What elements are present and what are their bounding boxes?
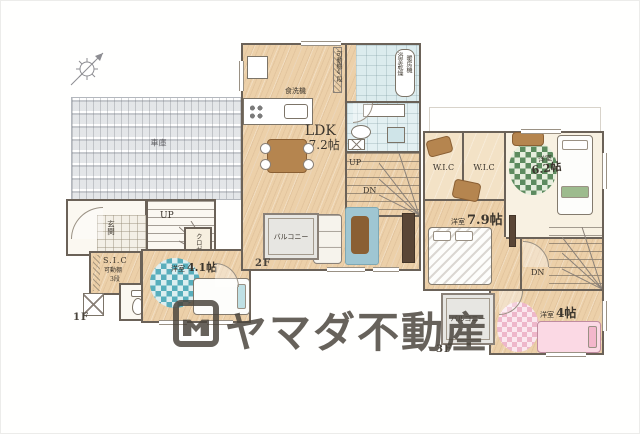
window-2f-d [239, 61, 244, 91]
bedroom-4-1-type: 洋室 [171, 265, 185, 273]
bath-dryer-label-1: 浴室乾燥 [396, 52, 402, 76]
watermark-logo-glyph [183, 315, 209, 336]
tv-board-icon [402, 213, 415, 263]
bed-6-2 [557, 135, 593, 215]
toilet-2f-icon [351, 125, 371, 139]
bed-6-2-pillow [562, 140, 588, 150]
stairs-3f-winder-lines [562, 227, 602, 289]
bed-4-pillow [588, 326, 597, 348]
stairs-3f-dn-label: DN [531, 268, 544, 277]
wall-79-hall [520, 239, 522, 291]
ldk-name: LDK [301, 123, 340, 139]
chair-icon [303, 159, 314, 170]
entrance-tile-floor [97, 215, 146, 255]
bedroom-4-1-label: 洋室4.1帖 [171, 257, 217, 275]
stairs-2f-dn-label: DN [363, 186, 376, 195]
entrance-label: 玄関 [107, 220, 115, 235]
window-3f-a [602, 153, 607, 189]
desk-6-2-icon [512, 132, 544, 146]
bedroom-6-2-label: 洋室 6.2帖 [530, 153, 563, 178]
balcony-2f-label: バルコニー [274, 232, 309, 240]
wardrobe-icon [509, 215, 516, 247]
bed-7-9-pillow [455, 231, 473, 241]
chair-icon [260, 159, 271, 170]
window-2f-b [373, 267, 399, 272]
washer-pan-2f-icon [348, 139, 365, 150]
bed-7-9-pillow [433, 231, 451, 241]
bed-4 [537, 321, 601, 353]
garage-label: 車庫 [151, 139, 167, 148]
stairs-2f-up-label: UP [349, 158, 361, 167]
pantry-shelf-label: 可動棚4段 [335, 51, 341, 82]
dining-table-icon [267, 139, 307, 173]
window-3f-d [521, 129, 561, 134]
refrigerator-icon [247, 56, 268, 79]
bed-7-9 [428, 227, 492, 285]
stairs-2f-winder-lines [379, 153, 419, 215]
wic-left-label: W.I.C [433, 163, 454, 172]
wic-right-label: W.I.C [473, 163, 494, 172]
chair-icon [260, 143, 271, 154]
window-2f-c [301, 41, 341, 46]
sic-shelf-hatch [93, 255, 100, 291]
stove-icon [247, 103, 265, 121]
bedroom-7-9-type: 洋室 [451, 218, 465, 226]
sic-shelf-label: 可動棚 [104, 268, 122, 275]
garage-area: 車庫 [71, 97, 246, 200]
watermark-logo [173, 300, 219, 347]
window-3f-b [602, 301, 607, 331]
sic-label: S.I.C [103, 256, 128, 265]
sink-icon [284, 104, 308, 119]
floor1-label: 1F [73, 312, 89, 323]
watermark-brand: ヤマダ不動産 [225, 299, 489, 360]
dishwasher-label: 食洗機 [285, 87, 306, 95]
balcony-2f: バルコニー [263, 213, 319, 260]
bath-mat-icon [387, 127, 405, 143]
kitchen-counter [243, 98, 313, 125]
bedroom-4-label: 洋室4帖 [540, 303, 576, 321]
window-2f-a [327, 267, 365, 272]
stairs-1f-up-label: UP [160, 211, 174, 221]
window-3f-c [546, 352, 586, 357]
floor2-label: 2F [255, 258, 271, 269]
bedroom-4-size: 4帖 [556, 306, 576, 320]
bathroom-2f: 浴室乾燥 暖房機 [356, 45, 419, 102]
chair-icon [303, 143, 314, 154]
bedroom-4-type: 洋室 [540, 311, 554, 319]
wall-wic-62 [504, 133, 506, 237]
compass-icon [63, 45, 111, 93]
bedroom-7-9-size: 7.9帖 [467, 213, 503, 228]
floor-plan-canvas: 車庫 玄関 UP クロゼット S.I.C 可動棚 3段 洋室4.1帖 1F [0, 0, 640, 434]
bedroom-4-1-size: 4.1帖 [187, 261, 217, 274]
living-table-icon [351, 216, 369, 254]
bed-6-2-blanket [561, 186, 589, 198]
bath-dryer-label-2: 暖房機 [405, 55, 411, 73]
